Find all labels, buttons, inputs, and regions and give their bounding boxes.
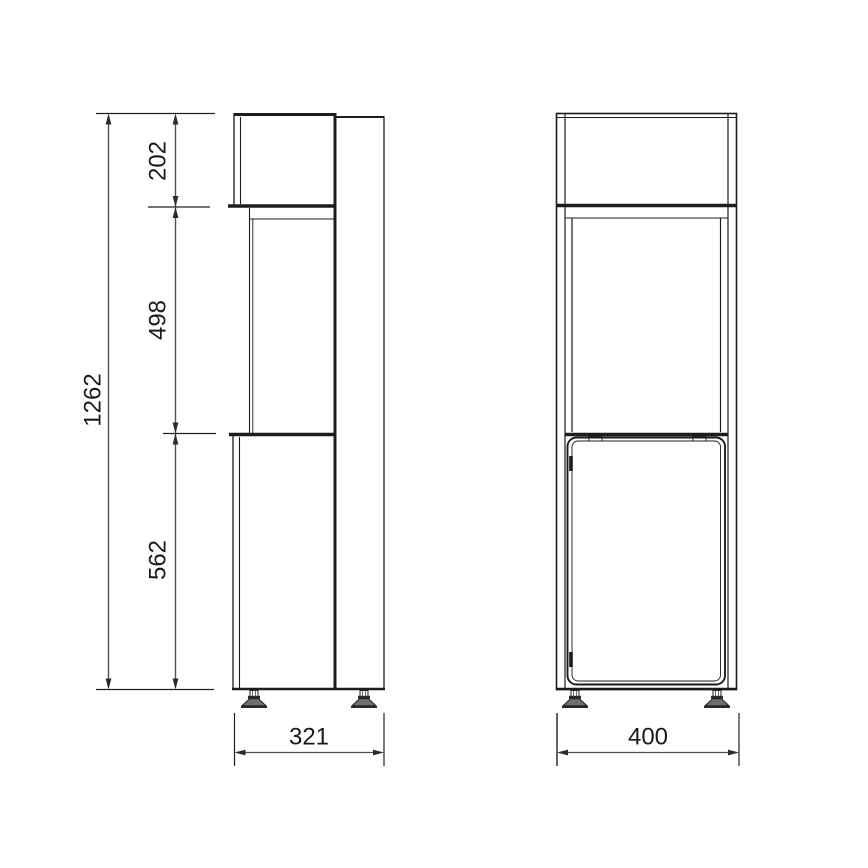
front-view-outer-frame xyxy=(557,114,737,690)
cabinet-dimension-drawing: 1262 202 498 562 321 400 xyxy=(0,0,868,868)
dim-label-bottom-section: 562 xyxy=(145,540,172,580)
dim-label-width: 400 xyxy=(628,724,668,751)
leveling-foot xyxy=(562,691,588,709)
cabinet-side-view xyxy=(228,113,385,708)
leveling-foot xyxy=(241,691,267,709)
door-hinge-mark xyxy=(569,652,573,667)
cabinet-front-view xyxy=(556,114,737,709)
dimension-overall-height: 1262 xyxy=(80,114,112,690)
dim-label-top-section: 202 xyxy=(145,141,172,181)
front-view-middle-section xyxy=(565,218,728,435)
dim-label-overall-height: 1262 xyxy=(80,373,107,426)
height-dimensions: 1262 202 498 562 xyxy=(80,114,217,690)
side-view-middle-section xyxy=(250,208,335,433)
leveling-foot xyxy=(704,691,730,709)
depth-dimension: 321 xyxy=(235,713,385,766)
technical-drawing-page: 1262 202 498 562 321 400 xyxy=(0,0,868,868)
front-view-door xyxy=(568,437,726,685)
door-hinge-mark xyxy=(569,456,573,471)
dim-label-middle-section: 498 xyxy=(145,300,172,340)
side-view-top-box xyxy=(228,113,336,206)
side-view-back-panel xyxy=(334,113,385,689)
dim-label-depth: 321 xyxy=(289,724,329,751)
front-view-top-box xyxy=(557,118,736,219)
leveling-foot xyxy=(351,691,377,709)
width-dimension: 400 xyxy=(557,713,739,766)
dimension-section-heights: 202 498 562 xyxy=(145,114,179,690)
side-view-bottom-cabinet xyxy=(229,433,385,689)
